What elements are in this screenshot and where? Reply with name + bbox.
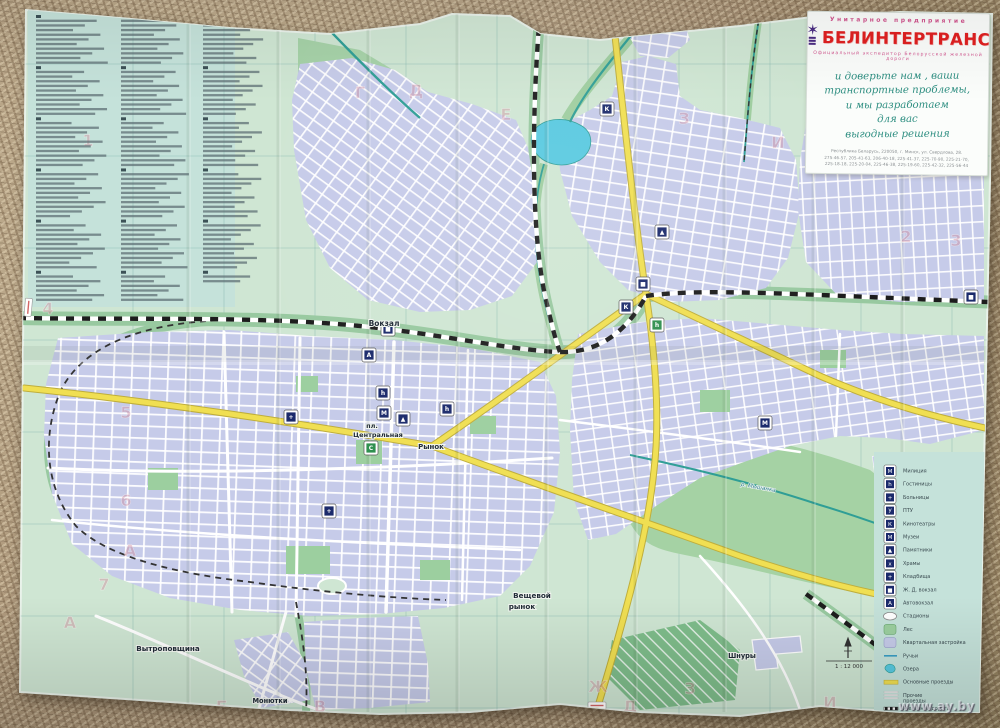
street-index-line xyxy=(36,182,74,184)
street-index-line xyxy=(203,182,251,184)
slogan-line: транспортные проблемы, xyxy=(807,84,988,100)
slogan-line: для вас xyxy=(807,113,988,129)
grid-ref-letter: В xyxy=(314,697,326,716)
horizontal-fold-light xyxy=(18,360,990,365)
street-index-line xyxy=(203,173,238,175)
grid-ref-letter: З xyxy=(684,679,695,698)
street-index-line xyxy=(121,252,184,254)
street-index-line xyxy=(203,122,249,124)
street-index-line xyxy=(36,192,90,194)
svg-text:■: ■ xyxy=(887,588,892,594)
svg-text:▲: ▲ xyxy=(401,416,406,423)
svg-text:К: К xyxy=(605,106,610,113)
svg-text:К: К xyxy=(888,522,892,528)
street-index-line xyxy=(36,145,91,147)
street-index-line xyxy=(203,145,232,147)
stadium-icon: С xyxy=(364,441,378,455)
street-index-line xyxy=(36,38,89,40)
street-index-line xyxy=(36,15,41,18)
street-index-line xyxy=(36,159,94,161)
legend-label: ПТУ xyxy=(903,508,913,514)
street-index-line xyxy=(121,99,183,101)
street-index-line xyxy=(121,108,160,110)
slogan-line: и мы разработаем xyxy=(807,98,988,114)
street-index-line xyxy=(36,257,81,259)
advert-address: Республика Беларусь, 220050, г. Минск, у… xyxy=(806,148,987,169)
label-pl-1: пл. xyxy=(366,422,378,430)
street-index-line xyxy=(121,113,186,115)
grid-ref-letter: Д xyxy=(409,81,423,100)
street-index-line xyxy=(203,210,258,212)
street-index-line xyxy=(36,243,77,245)
legend-label: Основные проезды xyxy=(903,680,954,686)
svg-text:+: + xyxy=(888,495,893,501)
grid-ref-letter: И xyxy=(823,693,836,712)
street-index-line xyxy=(203,113,236,115)
street-index-line xyxy=(36,85,88,87)
street-index-line xyxy=(121,80,153,82)
horizontal-fold xyxy=(18,346,990,362)
street-index-line xyxy=(121,89,168,91)
street-index-line xyxy=(36,117,41,120)
street-index-line xyxy=(36,215,70,217)
svg-text:М: М xyxy=(762,420,768,427)
street-index-line xyxy=(36,261,69,263)
advert-subtitle: Официальный экспедитор Белорусской желез… xyxy=(807,51,988,64)
street-index-line xyxy=(121,234,155,236)
hospital-icon: + xyxy=(284,410,298,424)
street-index-line xyxy=(36,136,75,138)
monument-icon: ▲ xyxy=(396,412,410,426)
street-index-line xyxy=(203,220,208,223)
street-index-line xyxy=(203,196,254,198)
street-index-line xyxy=(203,266,237,268)
grid-ref-letter: А xyxy=(64,613,77,632)
street-index-line xyxy=(36,108,107,110)
label-veshevoy-2: рынок xyxy=(509,602,536,611)
svg-text:■: ■ xyxy=(968,294,974,301)
street-index-line xyxy=(121,38,180,40)
street-index-line xyxy=(203,62,246,64)
street-index-line xyxy=(121,173,189,175)
legend-label: Гостиницы xyxy=(903,482,932,488)
street-index-line xyxy=(36,150,79,152)
legend-stadiums: Стадионы xyxy=(884,612,930,620)
street-index-line xyxy=(121,266,188,268)
street-index-line xyxy=(203,206,235,208)
svg-text:+: + xyxy=(888,575,893,581)
monument-icon: ▲ xyxy=(655,225,669,239)
belintertrans-logo-icon: ✶ xyxy=(806,24,819,50)
street-index-line xyxy=(121,52,183,54)
svg-text:К: К xyxy=(624,304,629,311)
street-index-line xyxy=(121,248,158,250)
street-index-line xyxy=(203,80,240,82)
street-index-line xyxy=(121,48,157,50)
street-index-line xyxy=(121,75,164,77)
hotel-icon: h xyxy=(650,318,664,332)
street-index-line xyxy=(36,66,41,69)
street-index-line xyxy=(121,117,126,120)
street-index-line xyxy=(203,224,261,226)
street-index-line xyxy=(203,52,233,54)
label-monutki: Монютки xyxy=(253,697,288,705)
street-index-line xyxy=(203,48,243,50)
road-direction-sign xyxy=(24,298,33,317)
street-index-line xyxy=(36,271,41,274)
street-index-line xyxy=(121,280,154,282)
street-index-line xyxy=(121,238,181,240)
svg-text:h: h xyxy=(381,390,385,397)
street-index-line xyxy=(36,275,73,277)
label-shnury: Шнуры xyxy=(728,652,756,660)
street-index-line xyxy=(203,131,262,133)
street-index-line xyxy=(203,99,233,101)
legend-label: Квартальная застройка xyxy=(903,639,966,646)
street-index-line xyxy=(121,71,176,73)
street-index-line xyxy=(121,150,171,152)
street-index-line xyxy=(36,168,41,171)
street-index-line xyxy=(121,224,177,226)
street-index-line xyxy=(121,34,154,36)
grid-ref-letter: 5 xyxy=(120,403,131,422)
hotel-icon: h xyxy=(440,402,454,416)
street-index-line xyxy=(121,103,171,105)
street-index-line xyxy=(36,131,87,133)
street-index-line xyxy=(121,168,126,171)
grid-ref-letter: 7 xyxy=(98,575,109,594)
street-index-line xyxy=(36,178,86,180)
street-index-line xyxy=(121,206,185,208)
legend-label: Кинотеатры xyxy=(903,521,935,527)
street-index-line xyxy=(203,155,245,157)
legend-label: Стадионы xyxy=(903,614,930,620)
svg-text:А: А xyxy=(367,352,372,359)
road-direction-sign xyxy=(522,13,540,20)
street-index-line xyxy=(121,182,167,184)
legend-label: Ручьи xyxy=(903,653,918,659)
svg-text:+: + xyxy=(288,414,293,421)
street-index-line xyxy=(36,48,104,50)
street-index-line xyxy=(36,206,94,208)
street-index-line xyxy=(203,57,256,59)
street-index-line xyxy=(36,238,89,240)
street-index-line xyxy=(203,261,247,263)
legend-label: Лес xyxy=(903,627,913,633)
street-index-line xyxy=(36,113,95,115)
street-index-line xyxy=(121,229,166,231)
grid-ref-letter: И xyxy=(771,133,784,152)
street-index-line xyxy=(121,94,157,96)
street-index-line xyxy=(203,201,245,203)
street-index-line xyxy=(121,122,164,124)
cinema-icon: К xyxy=(619,300,633,314)
street-index-line xyxy=(36,122,72,124)
street-index-line xyxy=(203,34,240,36)
street-index-line xyxy=(36,34,100,36)
street-index-line xyxy=(36,20,97,22)
street-index-line xyxy=(203,43,253,45)
street-index-line xyxy=(36,141,103,143)
street-index-line xyxy=(121,145,182,147)
street-index-line xyxy=(203,29,250,31)
svg-text:+: + xyxy=(326,508,331,515)
street-index-line xyxy=(121,289,169,291)
street-index-line xyxy=(121,275,165,277)
label-rynok: Рынок xyxy=(418,443,444,451)
street-index-line xyxy=(36,99,92,101)
street-index-line xyxy=(121,196,170,198)
street-index-line xyxy=(121,155,160,157)
grid-ref-letter: 2 xyxy=(900,227,911,246)
grid-ref-letter: 3 xyxy=(950,231,961,250)
street-index-line xyxy=(121,43,169,45)
street-index-line xyxy=(203,178,261,180)
street-index-line xyxy=(121,257,173,259)
street-index-line xyxy=(36,224,86,226)
street-index-line xyxy=(203,141,242,143)
legend-label: Милиция xyxy=(903,469,927,475)
street-index-line xyxy=(36,248,105,250)
street-index-line xyxy=(121,24,176,26)
street-index-line xyxy=(203,229,251,231)
grid-ref-letter: 4 xyxy=(42,299,53,318)
street-index-line xyxy=(121,215,162,217)
street-index-line xyxy=(121,271,126,274)
street-index-line xyxy=(203,243,254,245)
street-index-line xyxy=(36,210,82,212)
cinema-icon: К xyxy=(600,102,614,116)
grid-ref-letter: 6 xyxy=(120,491,131,510)
street-index-line xyxy=(121,136,167,138)
street-index-line xyxy=(36,103,80,105)
street-index-line xyxy=(203,94,243,96)
svg-text:h: h xyxy=(655,322,659,329)
street-index-line xyxy=(36,24,85,26)
street-index-line xyxy=(121,127,153,129)
street-index-line xyxy=(36,234,101,236)
street-index-line xyxy=(203,187,241,189)
street-index-line xyxy=(121,201,159,203)
street-index-line xyxy=(203,85,263,87)
legend-label: Железная дорога xyxy=(903,706,950,712)
street-index-line xyxy=(121,66,126,69)
church-icon: + xyxy=(322,504,336,518)
street-index-line xyxy=(36,71,84,73)
street-index-line xyxy=(203,117,208,120)
street-index-line xyxy=(121,187,155,189)
police-icon: М xyxy=(758,416,772,430)
grid-ref-letter: Д xyxy=(623,697,637,716)
street-index-line xyxy=(203,192,232,194)
grid-ref-letter: Е xyxy=(501,105,512,124)
street-index-line xyxy=(203,89,253,91)
street-index-line xyxy=(203,136,252,138)
svg-text:М: М xyxy=(888,535,893,541)
label-vytropovschina: Вытроповщина xyxy=(136,644,200,653)
street-index-line xyxy=(203,66,208,69)
street-index-line xyxy=(203,271,208,274)
street-index-line xyxy=(36,299,92,301)
hotel-icon: h xyxy=(376,386,390,400)
street-index-line xyxy=(36,80,100,82)
label-pl-2: Центральная xyxy=(353,431,403,439)
legend-label: Автовокзал xyxy=(903,601,933,607)
street-index-line xyxy=(203,238,231,240)
label-veshevoy-1: Вещевой xyxy=(513,591,551,600)
legend-label: Храмы xyxy=(903,561,920,567)
street-index-line xyxy=(203,108,246,110)
street-index-line xyxy=(121,243,169,245)
street-index-line xyxy=(36,94,103,96)
street-index-line xyxy=(203,168,208,171)
street-index-line xyxy=(36,43,77,45)
legend-label: Памятники xyxy=(903,548,932,554)
advert-box: Унитарное предприятие ✶ БЕЛИНТЕРТРАНС Оф… xyxy=(805,11,990,177)
street-index-line xyxy=(36,127,99,129)
street-index-line xyxy=(203,159,235,161)
street-index-line xyxy=(203,234,241,236)
svg-text:h: h xyxy=(445,406,449,413)
street-index-line xyxy=(203,20,237,22)
street-index-line xyxy=(121,220,126,223)
svg-text:h: h xyxy=(888,482,892,488)
street-index-line xyxy=(203,71,259,73)
street-index-line xyxy=(121,294,157,296)
svg-text:М: М xyxy=(381,410,387,417)
stadium-oval xyxy=(318,578,346,594)
street-index-line xyxy=(36,201,106,203)
legend-label: Озера xyxy=(903,667,919,673)
street-index-line xyxy=(203,127,239,129)
museum-icon: М xyxy=(377,406,391,420)
street-index-line xyxy=(203,275,250,277)
slogan-line: выгодные решения xyxy=(807,127,988,143)
street-index-line xyxy=(36,89,76,91)
street-index-line xyxy=(36,62,108,64)
svg-text:А: А xyxy=(888,601,892,607)
street-index-line xyxy=(203,15,208,18)
street-index-line xyxy=(121,62,161,64)
advert-slogan: и доверьте нам , ваши транспортные пробл… xyxy=(807,69,989,143)
label-vokzal: Вокзал xyxy=(369,319,400,328)
slogan-line: и доверьте нам , ваши xyxy=(807,69,988,85)
legend-label: Ж. Д. вокзал xyxy=(903,587,937,593)
legend-label: Кладбища xyxy=(903,574,930,580)
street-index-line xyxy=(203,215,248,217)
street-index-line xyxy=(121,141,156,143)
address-line: 225-18-18, 225-20-04, 225-46-38, 225-19-… xyxy=(806,161,987,170)
street-index-line xyxy=(121,178,178,180)
street-index-line xyxy=(36,196,78,198)
photo-of-city-map: ■■hhhККМ▲▲АС+М■+ ГДЕЗИ14567ААБВДЖЗИ23 Во… xyxy=(0,0,1000,728)
svg-text:С: С xyxy=(369,445,374,452)
street-index-line xyxy=(121,57,172,59)
legend-label: Музеи xyxy=(903,535,919,541)
grid-ref-letter: Г xyxy=(355,83,365,102)
brand-name: БЕЛИНТЕРТРАНС xyxy=(822,27,991,48)
svg-text:▲: ▲ xyxy=(660,229,665,236)
street-index-line xyxy=(36,266,97,268)
street-index-line xyxy=(36,57,80,59)
street-index-line xyxy=(203,248,244,250)
street-index-line xyxy=(121,29,165,31)
street-index-line xyxy=(36,75,72,77)
street-index-line xyxy=(203,75,250,77)
grid-ref-letter: А xyxy=(124,541,137,560)
grid-ref-letter: Ж xyxy=(588,677,608,696)
street-index-line xyxy=(121,210,174,212)
street-index-line xyxy=(203,38,263,40)
street-index-line xyxy=(121,131,178,133)
road-direction-sign xyxy=(596,19,615,28)
street-index-line xyxy=(36,155,106,157)
street-index-line xyxy=(203,280,240,282)
street-index-line xyxy=(203,150,255,152)
street-index-line xyxy=(121,159,185,161)
bus-station-icon: А xyxy=(362,348,376,362)
street-index-line xyxy=(36,29,73,31)
street-index-line xyxy=(203,164,258,166)
svg-text:■: ■ xyxy=(640,281,646,288)
street-index-line xyxy=(36,289,77,291)
street-index-line xyxy=(36,294,104,296)
street-index-line xyxy=(36,187,102,189)
street-index-line xyxy=(36,173,98,175)
street-index-line xyxy=(36,285,89,287)
street-index-line xyxy=(121,285,180,287)
street-index-line xyxy=(203,257,257,259)
street-index-line xyxy=(36,229,74,231)
svg-text:М: М xyxy=(888,469,893,475)
railway-station-icon: ■ xyxy=(636,277,650,291)
scale-text: 1 : 12 000 xyxy=(835,664,864,670)
street-index-line xyxy=(36,280,100,282)
street-index-line xyxy=(121,164,174,166)
railway-station-icon: ■ xyxy=(964,290,978,304)
street-index-line xyxy=(36,220,41,223)
street-index-line xyxy=(121,192,181,194)
legend-label: Больницы xyxy=(903,495,930,501)
street-index-line xyxy=(36,252,93,254)
grid-ref-letter: З xyxy=(678,109,689,128)
street-index-line xyxy=(36,164,83,166)
street-index-line xyxy=(121,85,179,87)
street-index-line xyxy=(36,52,92,54)
street-index-line xyxy=(203,103,256,105)
street-index-line xyxy=(121,261,162,263)
legend-label: проезды xyxy=(903,698,926,704)
street-index-line xyxy=(121,299,183,301)
street-index-line xyxy=(203,252,234,254)
